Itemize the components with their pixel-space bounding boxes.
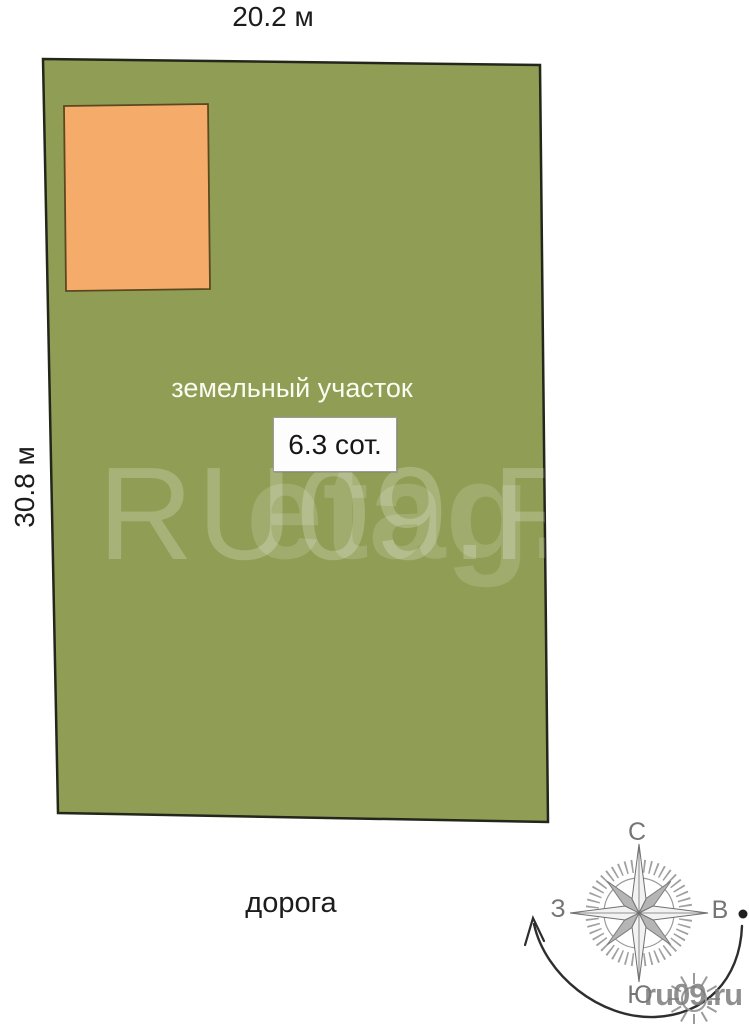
compass-rose	[570, 844, 708, 982]
plot-title-label: земельный участок	[142, 374, 442, 404]
area-value-text: 6.3 сот.	[288, 429, 381, 461]
road-label: дорога	[191, 888, 391, 920]
compass-cardinal-points	[570, 844, 708, 982]
top-dimension-label: 20.2 м	[173, 2, 373, 33]
arrow-start-dot	[739, 910, 748, 919]
building-footprint	[64, 104, 210, 291]
corner-watermark: ru09.ru	[644, 979, 742, 1010]
site-plan: RU09.R etag.i 20.2 м 30.8 м земельный уч…	[0, 0, 749, 1024]
site-plan-drawing	[0, 0, 749, 1024]
compass-east-label: В	[704, 898, 736, 923]
compass-west-label: З	[542, 897, 574, 922]
compass-north-label: С	[621, 820, 653, 845]
area-value-box: 6.3 сот.	[273, 417, 397, 472]
left-dimension-label: 30.8 м	[10, 412, 40, 562]
